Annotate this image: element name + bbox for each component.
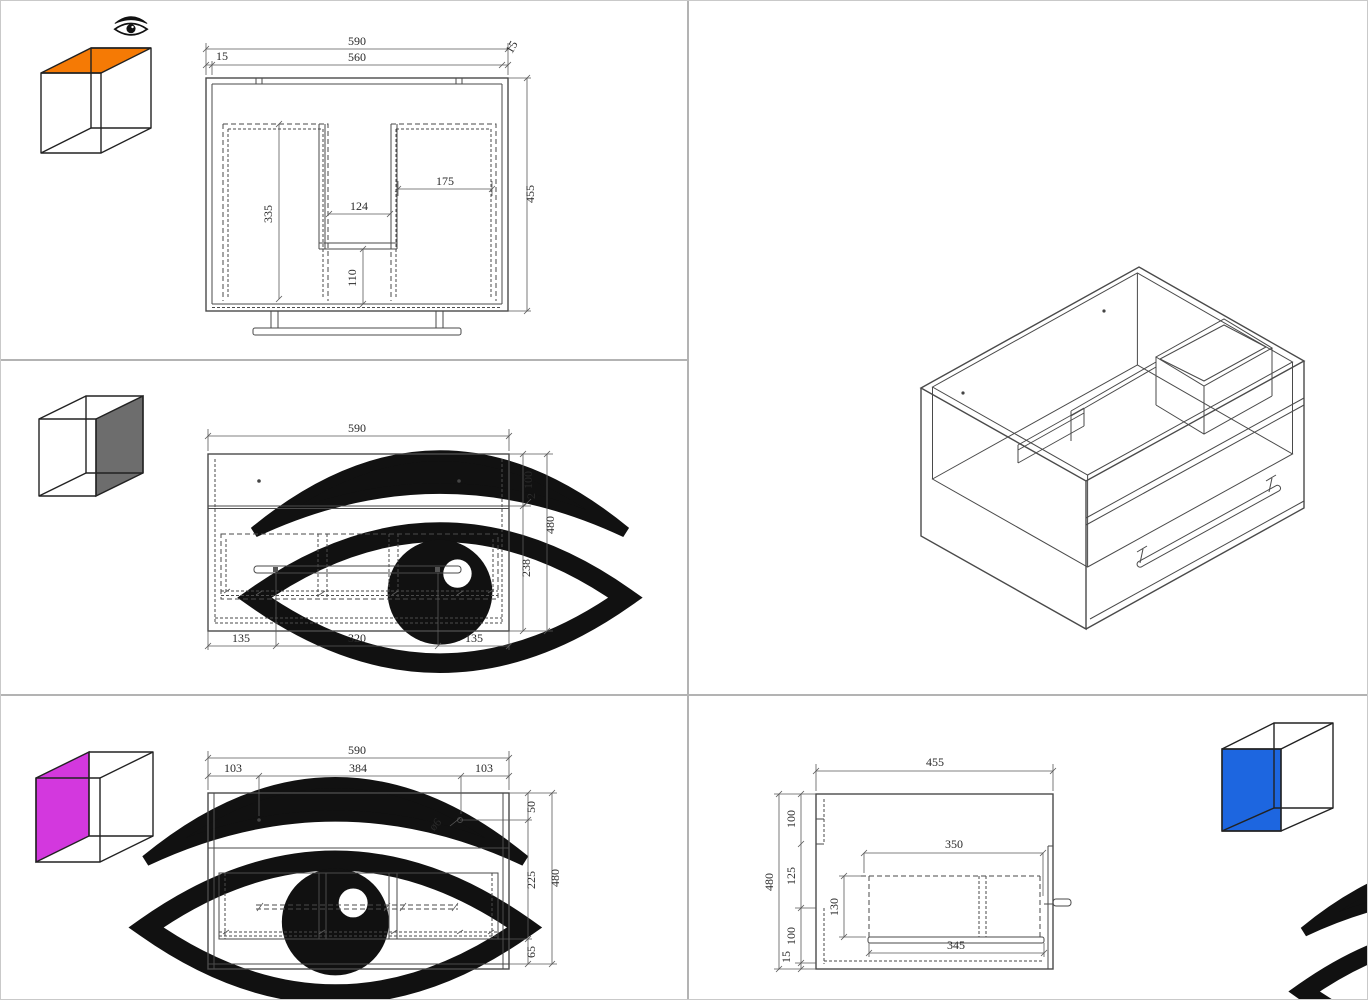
- dim-label: 350: [945, 837, 963, 851]
- eye-icon: [115, 17, 147, 35]
- dim-label: 50: [524, 801, 538, 813]
- front-view-drawing: 590 103 384 103 ø6 50 225 65 480: [1, 696, 688, 1000]
- dim-label: 480: [543, 516, 557, 534]
- dim-label: 135: [465, 631, 483, 645]
- top-view-dimensions: 590 560 15 15 455 175 124 335 110: [203, 34, 537, 314]
- cube-front-face: [36, 752, 89, 862]
- dim-label: 455: [926, 755, 944, 769]
- isometric-view-drawing: [688, 1, 1368, 694]
- dim-label: 384: [349, 761, 367, 775]
- dim-label: 15: [502, 38, 520, 55]
- dim-label: 15: [216, 49, 228, 63]
- dim-label: 590: [348, 34, 366, 48]
- dim-label: 124: [350, 199, 368, 213]
- top-view-drawing: 590 560 15 15 455 175 124 335 110: [1, 1, 688, 359]
- view-cube-back-indicator: [39, 396, 143, 496]
- technical-drawing-sheet: 590 560 15 15 455 175 124 335 110: [0, 0, 1368, 1000]
- dim-label: 320: [348, 631, 366, 645]
- dim-label: 175: [436, 174, 454, 188]
- side-view-drawer-hidden: [861, 876, 1044, 943]
- dim-label: 65: [524, 946, 538, 958]
- dim-label: 130: [827, 898, 841, 916]
- eye-icon: [1304, 862, 1368, 1000]
- dim-label: 110: [345, 269, 359, 287]
- side-view-dimensions: 455 100 125 100 15 480 350 130 345: [762, 755, 1056, 972]
- cube-top-face: [41, 48, 151, 73]
- dim-label: 238: [519, 559, 533, 577]
- dim-label: 345: [947, 938, 965, 952]
- eye-icon: [146, 783, 525, 995]
- dim-label: 103: [224, 761, 242, 775]
- eye-icon: [254, 456, 625, 663]
- iso-cabinet-body: [921, 267, 1304, 629]
- dim-label: 225: [524, 871, 538, 889]
- back-view-drawing: 590 135 320 135 100 2 238 480: [1, 360, 688, 694]
- top-view-mounting-rail: [253, 311, 461, 335]
- view-cube-top-indicator: [41, 48, 151, 153]
- dim-label: 455: [523, 185, 537, 203]
- iso-drawer-front: [1086, 398, 1304, 619]
- dim-label: 480: [548, 869, 562, 887]
- iso-interior-dividers: [1018, 319, 1272, 463]
- view-cube-side-indicator: [1222, 723, 1333, 831]
- dim-label: 590: [348, 421, 366, 435]
- top-view-center-notch: [319, 124, 397, 249]
- dim-label: 103: [475, 761, 493, 775]
- dim-label: 100: [784, 810, 798, 828]
- dim-label: 100: [521, 471, 535, 489]
- iso-handle: [1136, 475, 1282, 568]
- dim-label: 125: [784, 867, 798, 885]
- dim-label: 135: [232, 631, 250, 645]
- dim-label: 480: [762, 873, 776, 891]
- dim-label: 590: [348, 743, 366, 757]
- dim-label: 335: [261, 205, 275, 223]
- dim-label: 100: [784, 927, 798, 945]
- view-cube-front-indicator: [36, 752, 153, 862]
- dim-label: 15: [779, 951, 793, 963]
- cube-back-face: [96, 396, 143, 496]
- dim-label: 2: [524, 493, 538, 499]
- dim-label: 560: [348, 50, 366, 64]
- side-view-drawing: 455 100 125 100 15 480 350 130 345: [688, 696, 1368, 1000]
